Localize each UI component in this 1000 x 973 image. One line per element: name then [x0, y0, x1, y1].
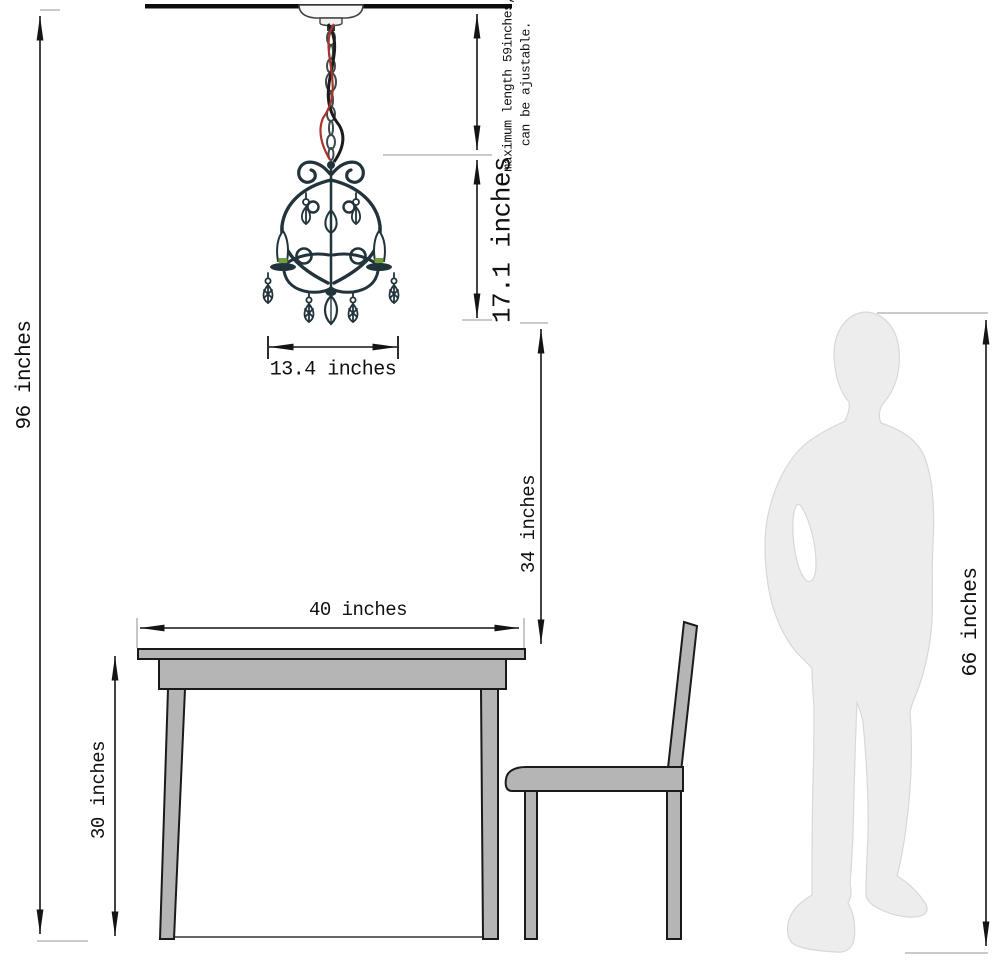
dining-table — [138, 649, 525, 939]
note-max-length: maximum length 59inches, can be ajustabl… — [499, 0, 534, 172]
dim-label-17-1: 17.1 inches — [485, 157, 520, 323]
chair-seat — [506, 767, 683, 791]
chair-leg-back — [667, 791, 681, 939]
chair-backrest — [668, 622, 697, 772]
table-apron — [159, 659, 506, 689]
note-line-1: maximum length 59inches, — [499, 0, 517, 172]
table-leg-right — [481, 689, 498, 939]
chandelier-arm-set — [264, 162, 332, 322]
chair — [506, 622, 697, 939]
table-top — [138, 649, 525, 659]
dim-label-40: 40 inches — [309, 598, 407, 624]
chair-leg-front — [525, 791, 537, 939]
dim-label-66: 66 inches — [958, 568, 986, 677]
dim-label-13-4: 13.4 inches — [270, 357, 397, 384]
dim-label-30: 30 inches — [87, 741, 113, 839]
chandelier — [264, 5, 399, 324]
dim-label-34: 34 inches — [517, 475, 543, 573]
diagram-canvas: 96 inches 17.1 inches maximum length 59i… — [0, 0, 1000, 973]
dim-label-96: 96 inches — [12, 321, 40, 430]
chandelier-stem — [325, 162, 337, 325]
note-line-2: can be ajustable. — [517, 0, 535, 172]
person-silhouette — [765, 312, 934, 952]
table-leg-left — [160, 689, 185, 939]
